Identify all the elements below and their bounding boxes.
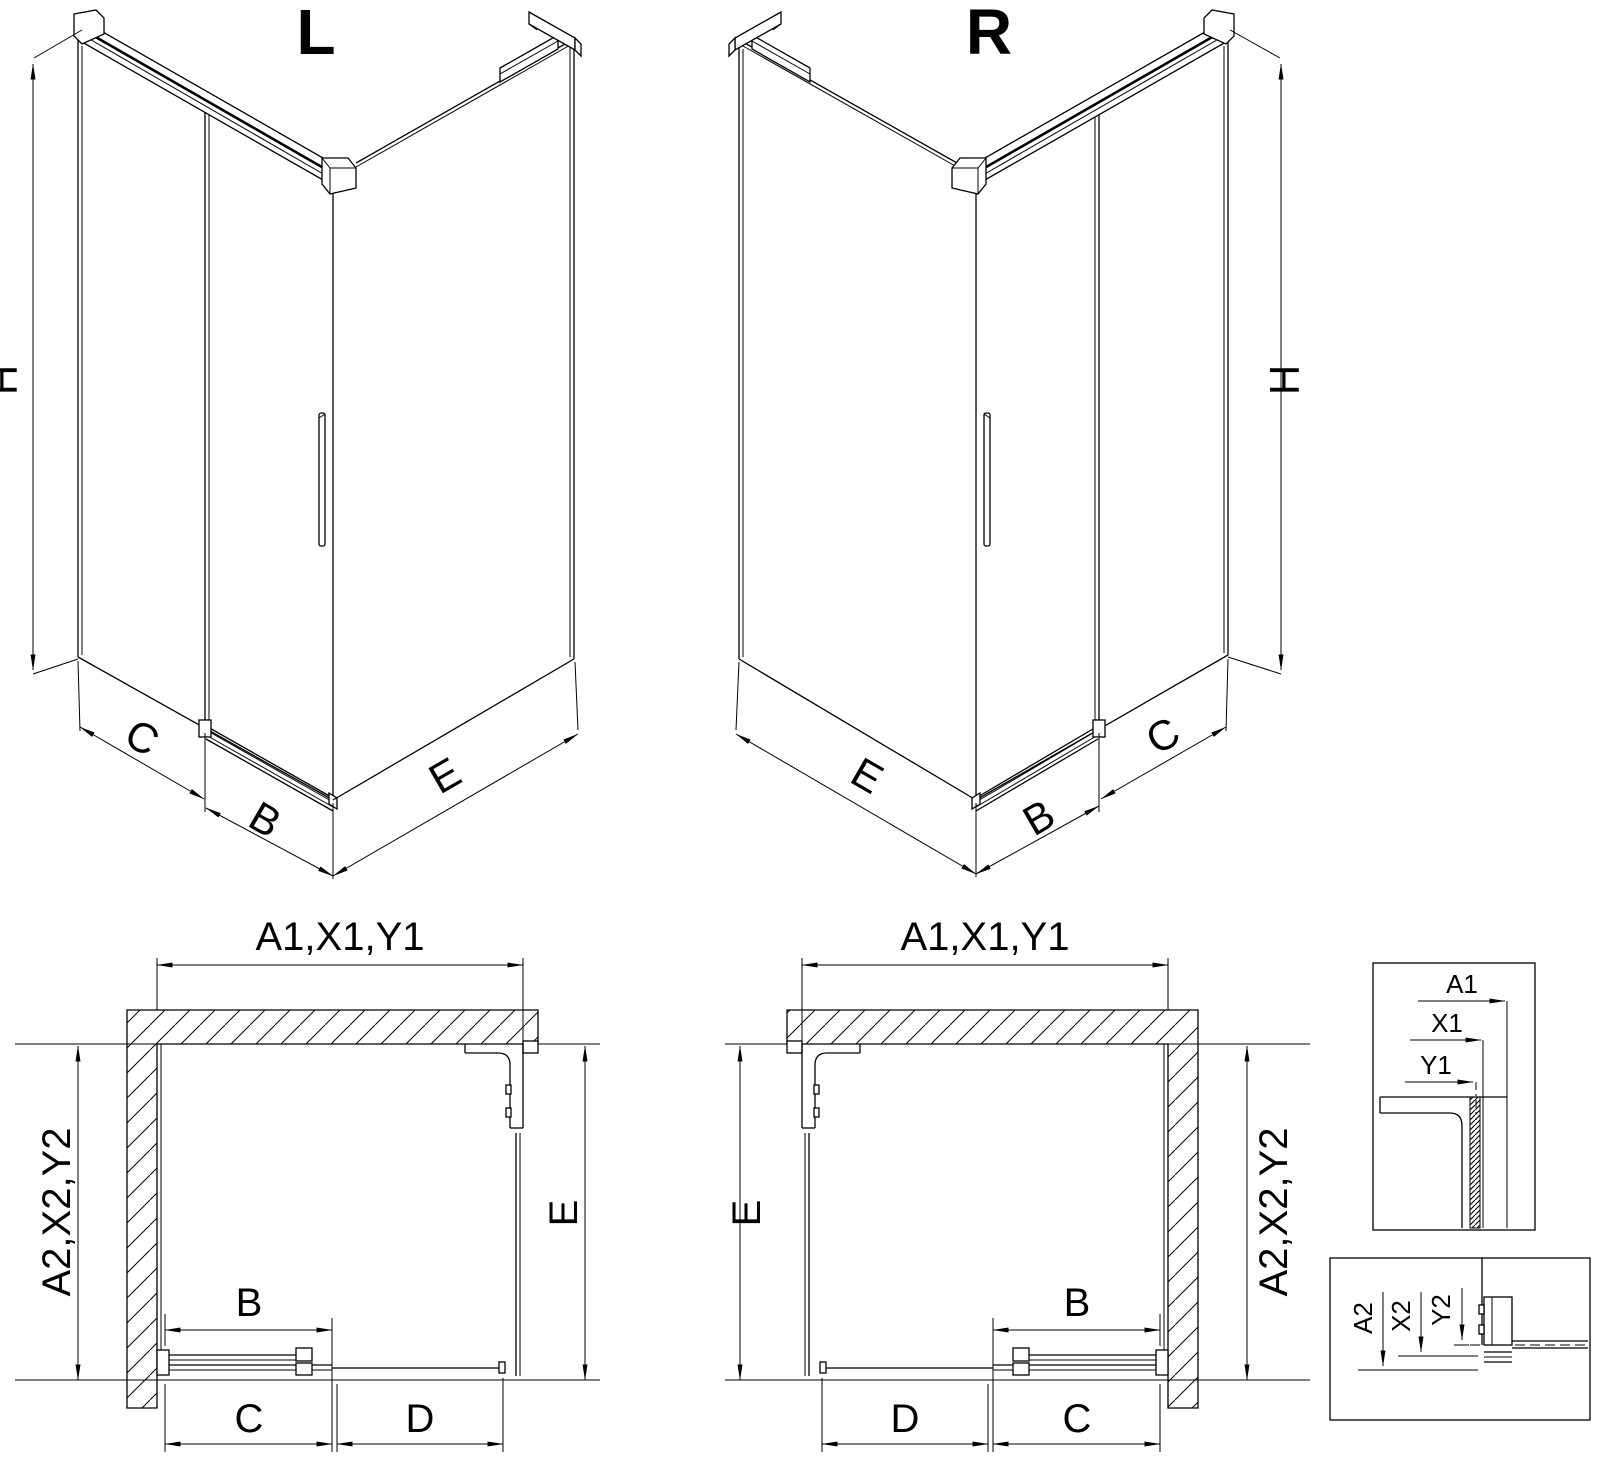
- detail-section-top: A1 X1 Y1: [1373, 963, 1535, 1230]
- iso-left-dim-b-label: B: [241, 792, 289, 847]
- plan-right-corner-bracket: [802, 1044, 860, 1128]
- iso-right-top-bar: [978, 10, 1234, 184]
- detail-top-y1-label: Y1: [1420, 1050, 1452, 1080]
- iso-left-dim-e: E: [333, 662, 578, 876]
- iso-left-dim-e-label: E: [421, 748, 469, 803]
- plan-left-dim-e-label: E: [542, 1200, 586, 1227]
- plan-left-corner-bracket: [465, 1044, 523, 1128]
- plan-right-dim-c: C: [993, 1384, 1160, 1452]
- plan-left-dim-c: C: [165, 1384, 332, 1452]
- plan-right-bottom-rail: [820, 1348, 1168, 1375]
- plan-left-dim-a2-label: A2,X2,Y2: [35, 1127, 79, 1296]
- iso-right-dim-c: C: [1101, 659, 1228, 799]
- iso-right-corner-bracket: [729, 12, 810, 82]
- detail-bottom-y2-label: Y2: [1426, 1294, 1456, 1326]
- iso-right-glass-panel-left: [739, 42, 976, 800]
- plan-right-dim-a1-label: A1,X1,Y1: [900, 915, 1069, 959]
- plan-right-wall-end-profile: [787, 1041, 802, 1053]
- iso-view-right: R: [729, 0, 1308, 877]
- plan-right-dim-c-label: C: [1063, 1397, 1092, 1441]
- plan-left-dim-e: E: [542, 1046, 586, 1380]
- iso-right-door-handle: [984, 413, 990, 546]
- plan-right-dim-a2: A2,X2,Y2: [1247, 1046, 1296, 1380]
- plan-right-side-panel: [805, 1133, 809, 1376]
- iso-right-corner-cube: [952, 158, 986, 194]
- plan-left-bottom-rail: [157, 1348, 505, 1375]
- iso-left-corner-bracket: [500, 12, 581, 82]
- detail-top-wall-profile: [1380, 1097, 1507, 1228]
- drawing-sheet: L: [0, 0, 1600, 1459]
- plan-view-left: A1,X1,Y1 A2,X2,Y2 E B C D: [15, 915, 600, 1452]
- iso-right-dim-e-label: E: [843, 748, 891, 803]
- iso-right-dim-h-label: H: [1261, 365, 1308, 395]
- iso-right-dim-c-label: C: [1138, 708, 1188, 764]
- iso-left-dim-c-label: C: [117, 710, 167, 766]
- plan-right-dim-b-label: B: [1064, 1281, 1091, 1325]
- detail-bottom-glass-panel: [1455, 1341, 1588, 1348]
- iso-left-glass-panel-right: [333, 40, 574, 800]
- iso-left-door-divider: [205, 112, 209, 731]
- detail-top-a1-label: A1: [1446, 969, 1478, 999]
- plan-right-dim-d-label: D: [891, 1397, 920, 1441]
- plan-left-wall-end-profile: [523, 1041, 538, 1053]
- iso-left-door-handle: [319, 413, 325, 546]
- iso-left-corner-cube: [322, 158, 356, 194]
- detail-bottom-x2-label: X2: [1386, 1300, 1416, 1332]
- detail-bottom-frame: [1330, 1258, 1590, 1420]
- iso-left-dim-height: H: [0, 30, 82, 674]
- detail-section-bottom: A2 X2 Y2: [1330, 1258, 1590, 1420]
- iso-right-dim-height: H: [1228, 30, 1308, 674]
- plan-left-dim-d-label: D: [406, 1397, 435, 1441]
- plan-view-right: A1,X1,Y1 A2,X2,Y2 E B D C: [725, 915, 1310, 1452]
- plan-left-dim-d: D: [337, 1378, 503, 1452]
- iso-right-dim-b-label: B: [1015, 790, 1063, 845]
- iso-left-dim-h-label: H: [0, 365, 26, 395]
- iso-right-title: R: [966, 0, 1012, 68]
- plan-left-dim-c-label: C: [235, 1397, 264, 1441]
- iso-left-title: L: [296, 0, 335, 68]
- plan-left-dim-a2: A2,X2,Y2: [35, 1046, 79, 1380]
- plan-right-dim-d: D: [822, 1378, 988, 1452]
- detail-top-glass-panel: [1470, 1097, 1480, 1228]
- detail-bottom-a2-label: A2: [1348, 1302, 1378, 1334]
- iso-left-dim-c: C: [78, 661, 205, 812]
- plan-left-side-panel: [516, 1133, 520, 1376]
- technical-drawing-canvas: L: [0, 0, 1600, 1459]
- plan-left-dim-a1-label: A1,X1,Y1: [255, 915, 424, 959]
- detail-bottom-track-profile: [1479, 1297, 1512, 1362]
- iso-right-dim-e: E: [736, 662, 976, 874]
- plan-right-dim-e: E: [725, 1046, 769, 1380]
- plan-left-dim-b-label: B: [236, 1281, 263, 1325]
- iso-right-door-divider: [1095, 112, 1099, 731]
- iso-right-dim-b: B: [976, 733, 1099, 877]
- iso-left-dim-b: B: [206, 792, 333, 879]
- detail-top-x1-label: X1: [1431, 1008, 1463, 1038]
- iso-left-top-bar: [74, 10, 330, 184]
- plan-right-dim-e-label: E: [725, 1200, 769, 1227]
- plan-right-dim-a2-label: A2,X2,Y2: [1252, 1127, 1296, 1296]
- plan-right-dim-b: B: [993, 1281, 1160, 1346]
- iso-view-left: L: [0, 0, 581, 879]
- plan-left-dim-b: B: [165, 1281, 332, 1346]
